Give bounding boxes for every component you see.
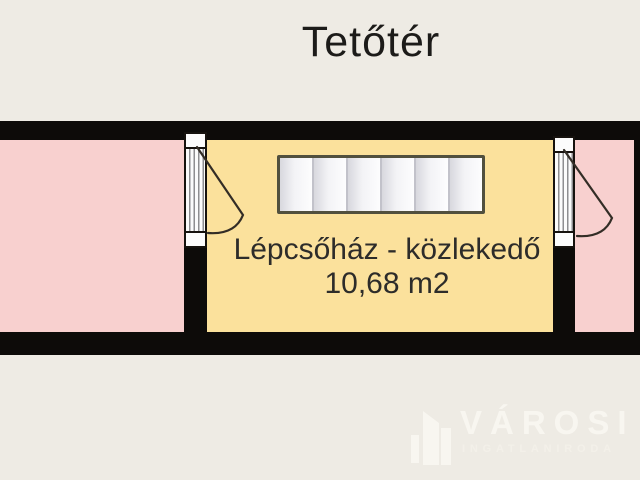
room-area: 10,68 m2	[207, 267, 567, 301]
wall-between-left-and-staircase	[184, 238, 207, 334]
stair-tread	[416, 158, 450, 211]
watermark: VÁROSI INGATLANIRODA	[400, 398, 630, 468]
watermark-tagline: INGATLANIRODA	[462, 443, 616, 455]
floorplan-canvas: Tetőtér Lépcsőház - közlekedő 10,68 m2	[0, 0, 640, 480]
wall-right	[634, 121, 640, 355]
door-leaf	[186, 149, 205, 231]
wall-top	[0, 121, 640, 140]
wall-bottom	[0, 332, 640, 355]
buildings-icon	[406, 402, 454, 468]
room-name: Lépcsőház - közlekedő	[207, 233, 567, 267]
stair-tread	[450, 158, 482, 211]
door-right	[553, 136, 575, 248]
room-right	[575, 140, 634, 332]
door-frame-top	[186, 134, 205, 149]
room-label: Lépcsőház - közlekedő 10,68 m2	[207, 233, 567, 301]
stairs	[277, 155, 485, 214]
page-title: Tetőtér	[302, 18, 440, 67]
door-frame-bottom	[555, 231, 573, 246]
room-left	[0, 140, 184, 332]
door-left	[184, 132, 207, 248]
stair-tread	[314, 158, 348, 211]
door-leaf	[555, 153, 573, 231]
door-frame-top	[555, 138, 573, 153]
stair-tread	[280, 158, 314, 211]
stair-tread	[382, 158, 416, 211]
stair-tread	[348, 158, 382, 211]
door-frame-bottom	[186, 231, 205, 246]
watermark-brand: VÁROSI	[460, 404, 635, 442]
